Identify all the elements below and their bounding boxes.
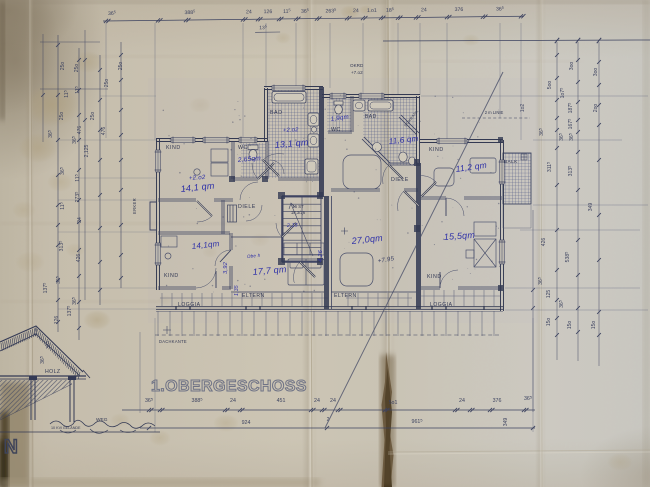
svg-text:376: 376 [455, 7, 464, 13]
svg-text:LOGGIA: LOGGIA [430, 302, 453, 308]
svg-text:2 m LINIE: 2 m LINIE [485, 110, 504, 115]
svg-text:KIND: KIND [164, 273, 179, 279]
svg-text:ELTERN: ELTERN [334, 293, 357, 299]
svg-text:15o: 15o [546, 318, 552, 327]
svg-text:476: 476 [77, 126, 83, 135]
svg-text:WC: WC [331, 127, 341, 133]
svg-text:126: 126 [54, 316, 60, 325]
svg-text:24: 24 [330, 398, 336, 404]
svg-text:24: 24 [459, 398, 465, 404]
svg-text:3oo: 3oo [569, 62, 575, 71]
svg-text:426: 426 [76, 254, 82, 263]
svg-text:WC: WC [238, 145, 248, 151]
svg-text:DIELE: DIELE [238, 204, 256, 210]
svg-text:125: 125 [546, 290, 552, 299]
svg-text:15o: 15o [591, 321, 597, 330]
svg-text:25o: 25o [104, 79, 110, 88]
svg-text:476: 476 [101, 127, 107, 136]
svg-text:18,3/26: 18,3/26 [291, 210, 306, 215]
svg-text:24: 24 [314, 398, 320, 404]
svg-text:24: 24 [353, 8, 359, 14]
svg-text:24: 24 [230, 398, 236, 404]
svg-text:25o: 25o [60, 62, 66, 71]
svg-text:5o1: 5o1 [389, 400, 398, 406]
svg-text:451: 451 [277, 398, 286, 404]
svg-text:OKRD: OKRD [350, 63, 364, 68]
svg-text:WEG: WEG [96, 417, 108, 423]
svg-text:24: 24 [421, 7, 427, 13]
svg-text:1.OBERGESCHOSS: 1.OBERGESCHOSS [151, 378, 307, 395]
svg-text:DIELE: DIELE [391, 177, 409, 183]
svg-text:25o: 25o [90, 112, 96, 121]
svg-text:24: 24 [77, 217, 83, 223]
svg-text:16 ST: 16 ST [292, 204, 304, 209]
svg-text:+2.o2: +2.o2 [283, 127, 300, 134]
svg-text:KIND: KIND [427, 274, 442, 280]
svg-text:349: 349 [588, 203, 594, 212]
svg-text:10 KVl GELÄNDE: 10 KVl GELÄNDE [51, 426, 81, 430]
svg-text:DACHKANTE: DACHKANTE [159, 339, 187, 344]
svg-text:15o: 15o [567, 321, 573, 330]
svg-text:BAD: BAD [270, 110, 282, 116]
svg-text:+7.o2: +7.o2 [351, 70, 363, 75]
svg-text:1,35: 1,35 [234, 285, 240, 296]
svg-text:349: 349 [503, 418, 509, 427]
svg-text:1.o1: 1.o1 [367, 8, 377, 14]
svg-text:LOGGIA: LOGGIA [178, 302, 201, 308]
svg-text:BAD: BAD [365, 114, 377, 120]
svg-text:2,13: 2,13 [286, 222, 298, 229]
svg-text:3oo: 3oo [593, 68, 599, 77]
svg-text:24: 24 [246, 9, 252, 15]
svg-text:KIND: KIND [429, 147, 444, 153]
svg-text:2,125: 2,125 [84, 144, 90, 157]
svg-text:ERKER: ERKER [132, 198, 137, 214]
svg-text:426: 426 [541, 238, 547, 247]
svg-text:KIND: KIND [166, 145, 181, 151]
svg-text:126: 126 [264, 9, 273, 15]
svg-text:BALK: BALK [504, 159, 518, 165]
svg-text:4,26: 4,26 [318, 249, 324, 262]
svg-text:2oo: 2oo [593, 104, 599, 113]
svg-text:25o: 25o [59, 112, 65, 121]
svg-text:HOLZ: HOLZ [45, 369, 60, 375]
svg-text:25o: 25o [74, 64, 80, 73]
svg-text:25o: 25o [118, 62, 124, 71]
svg-text:376: 376 [493, 398, 502, 404]
svg-text:5oo: 5oo [547, 81, 553, 90]
svg-text:N: N [4, 437, 18, 458]
svg-text:3,92: 3,92 [223, 261, 229, 274]
svg-text:924: 924 [242, 420, 251, 426]
